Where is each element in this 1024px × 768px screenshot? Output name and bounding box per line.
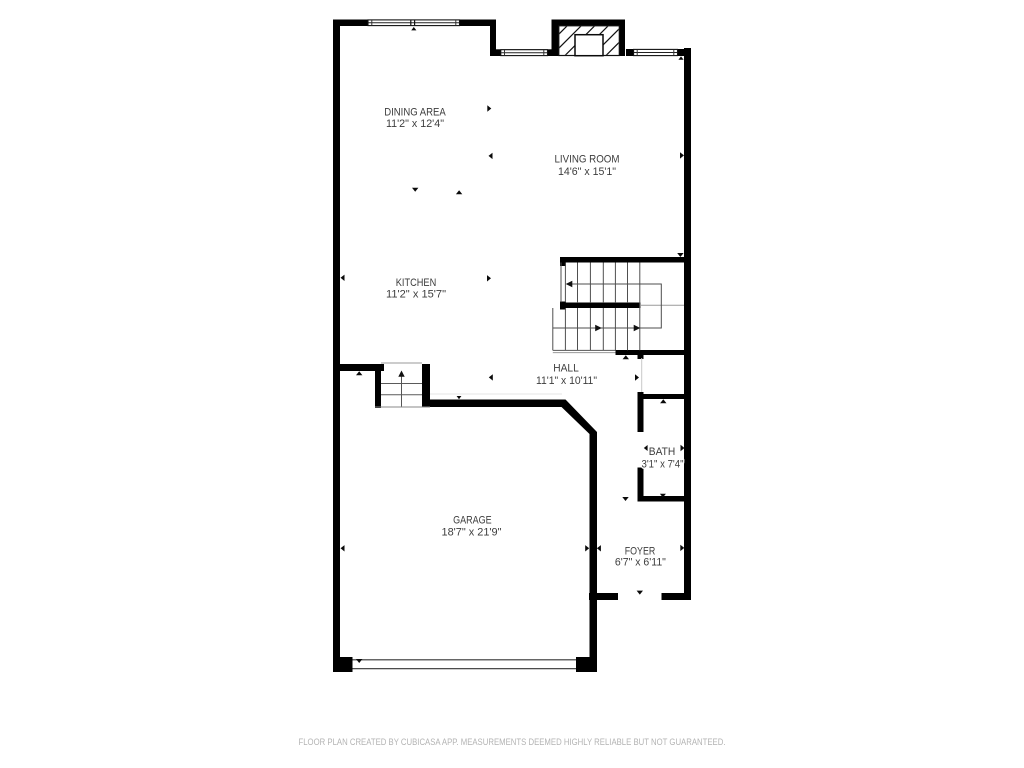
- svg-text:14'6" x 15'1": 14'6" x 15'1": [558, 166, 616, 178]
- svg-text:11'1" x 10'11": 11'1" x 10'11": [536, 375, 597, 387]
- svg-text:BATH: BATH: [649, 446, 676, 458]
- svg-text:HALL: HALL: [553, 363, 579, 375]
- svg-text:FLOOR PLAN CREATED BY CUBICASA: FLOOR PLAN CREATED BY CUBICASA APP. MEAS…: [299, 737, 726, 748]
- svg-text:3'1" x 7'4": 3'1" x 7'4": [642, 458, 684, 470]
- svg-text:LIVING ROOM: LIVING ROOM: [555, 154, 620, 166]
- svg-text:18'7" x 21'9": 18'7" x 21'9": [442, 527, 502, 539]
- svg-text:DINING AREA: DINING AREA: [384, 106, 446, 118]
- svg-text:GARAGE: GARAGE: [453, 515, 492, 527]
- svg-text:KITCHEN: KITCHEN: [396, 277, 437, 289]
- svg-text:6'7" x 6'11": 6'7" x 6'11": [615, 557, 666, 569]
- svg-text:FOYER: FOYER: [625, 545, 656, 557]
- svg-text:11'2" x 12'4": 11'2" x 12'4": [386, 118, 444, 130]
- svg-text:11'2" x 15'7": 11'2" x 15'7": [386, 289, 446, 301]
